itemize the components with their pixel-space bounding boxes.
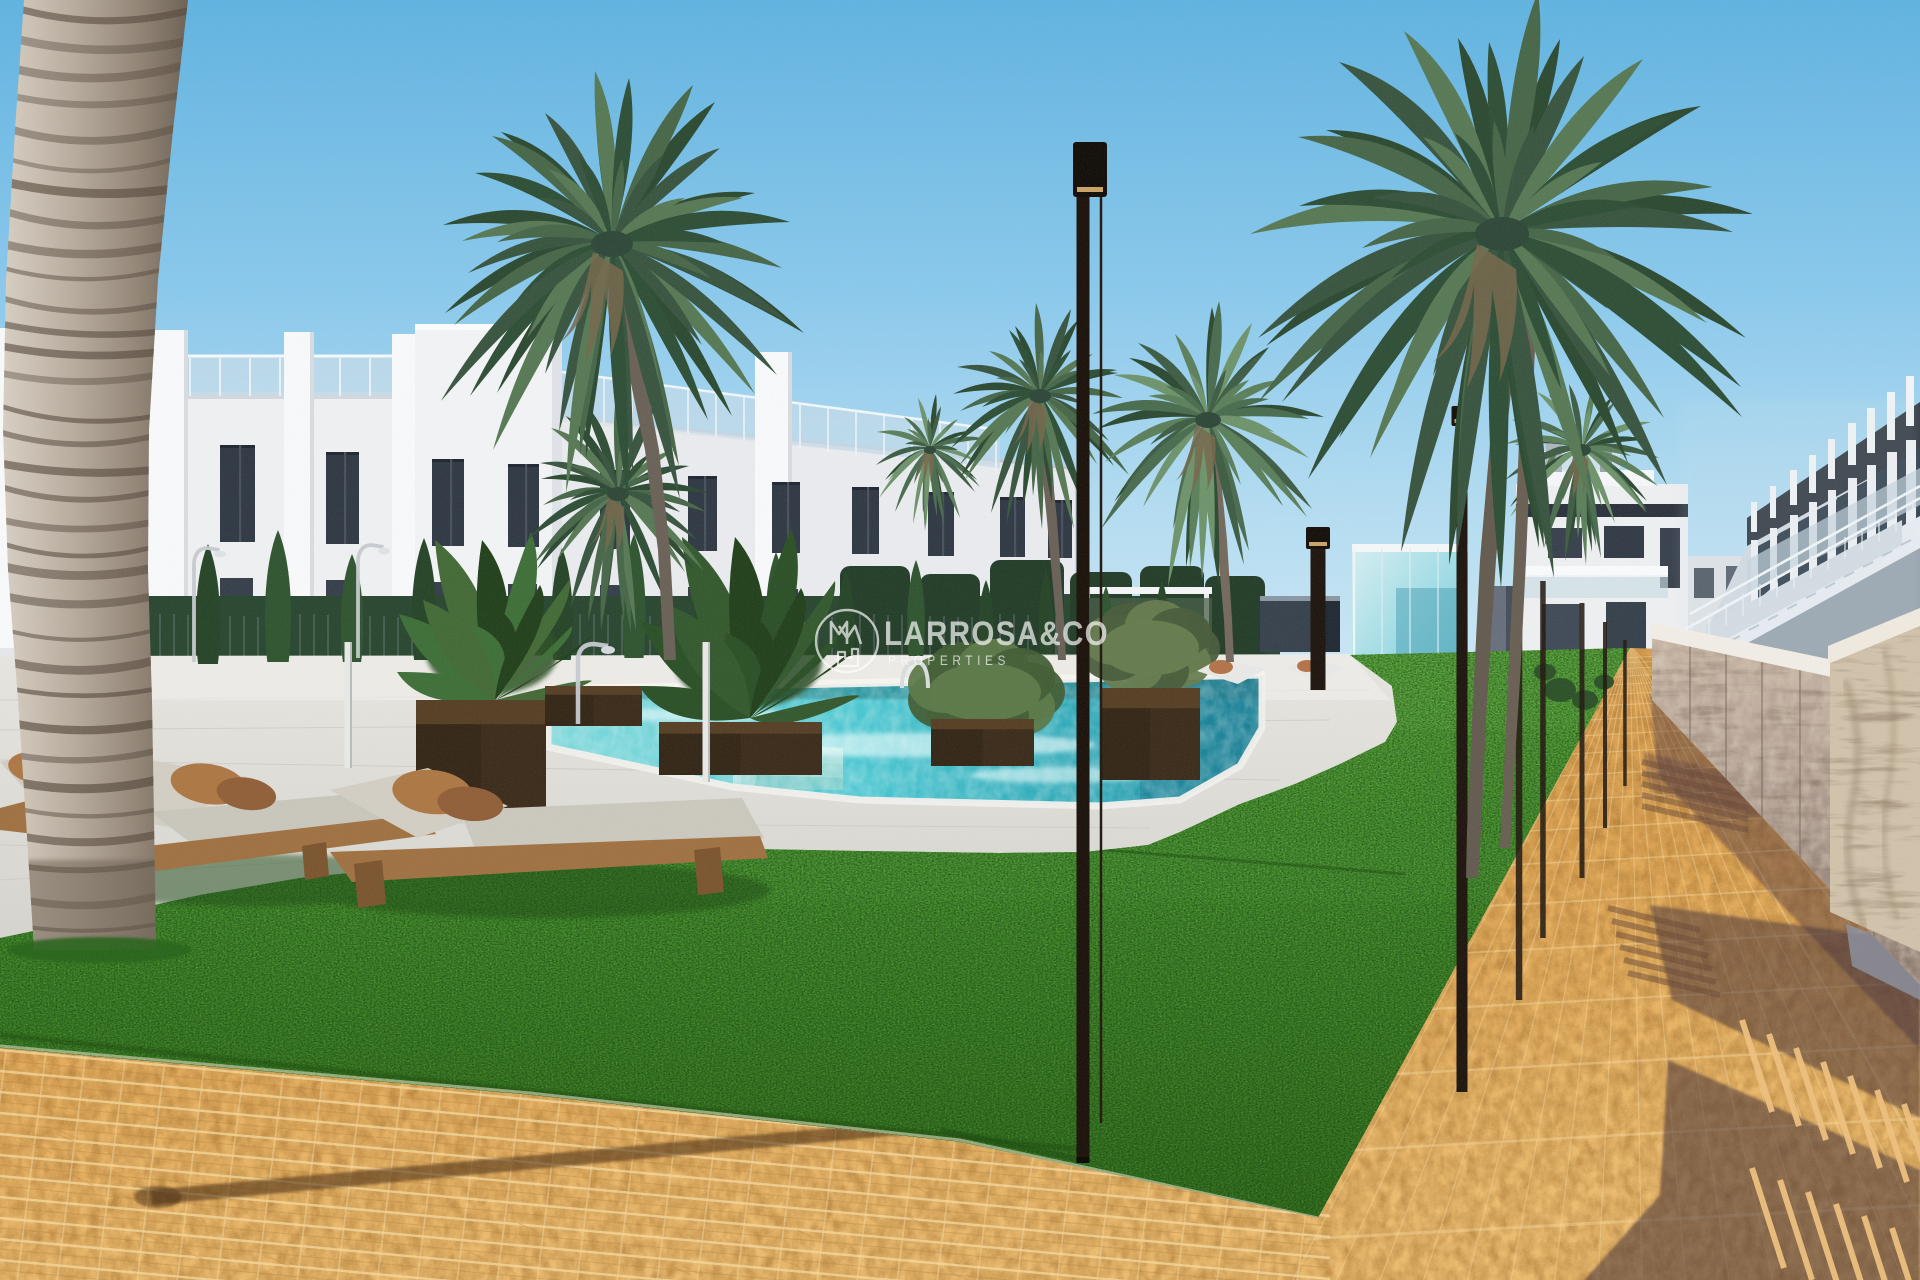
svg-text:PROPERTIES: PROPERTIES [888, 652, 1010, 668]
svg-text:LARROSA&CO: LARROSA&CO [884, 615, 1109, 653]
